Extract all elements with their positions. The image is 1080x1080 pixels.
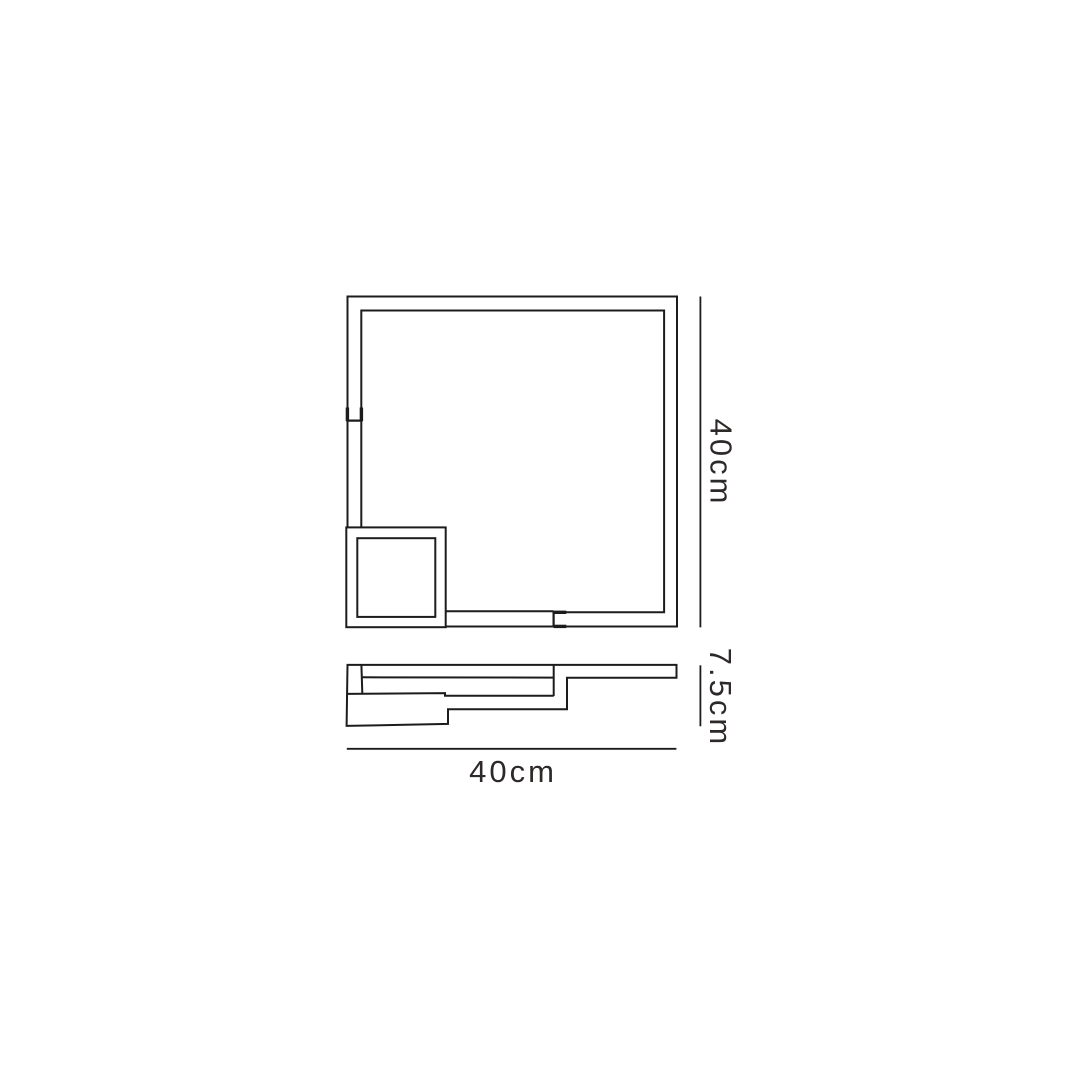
svg-text:7.5cm: 7.5cm bbox=[703, 648, 738, 747]
svg-text:40cm: 40cm bbox=[704, 419, 739, 507]
svg-text:40cm: 40cm bbox=[469, 754, 557, 789]
